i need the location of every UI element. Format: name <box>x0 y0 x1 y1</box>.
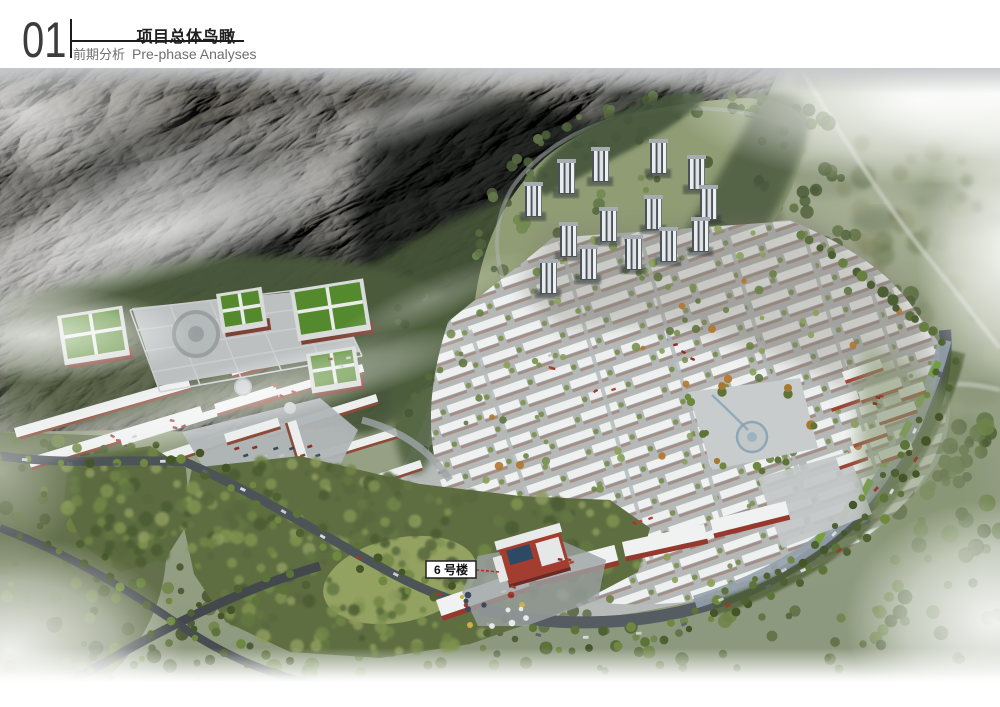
svg-text:6 号楼: 6 号楼 <box>434 562 468 577</box>
